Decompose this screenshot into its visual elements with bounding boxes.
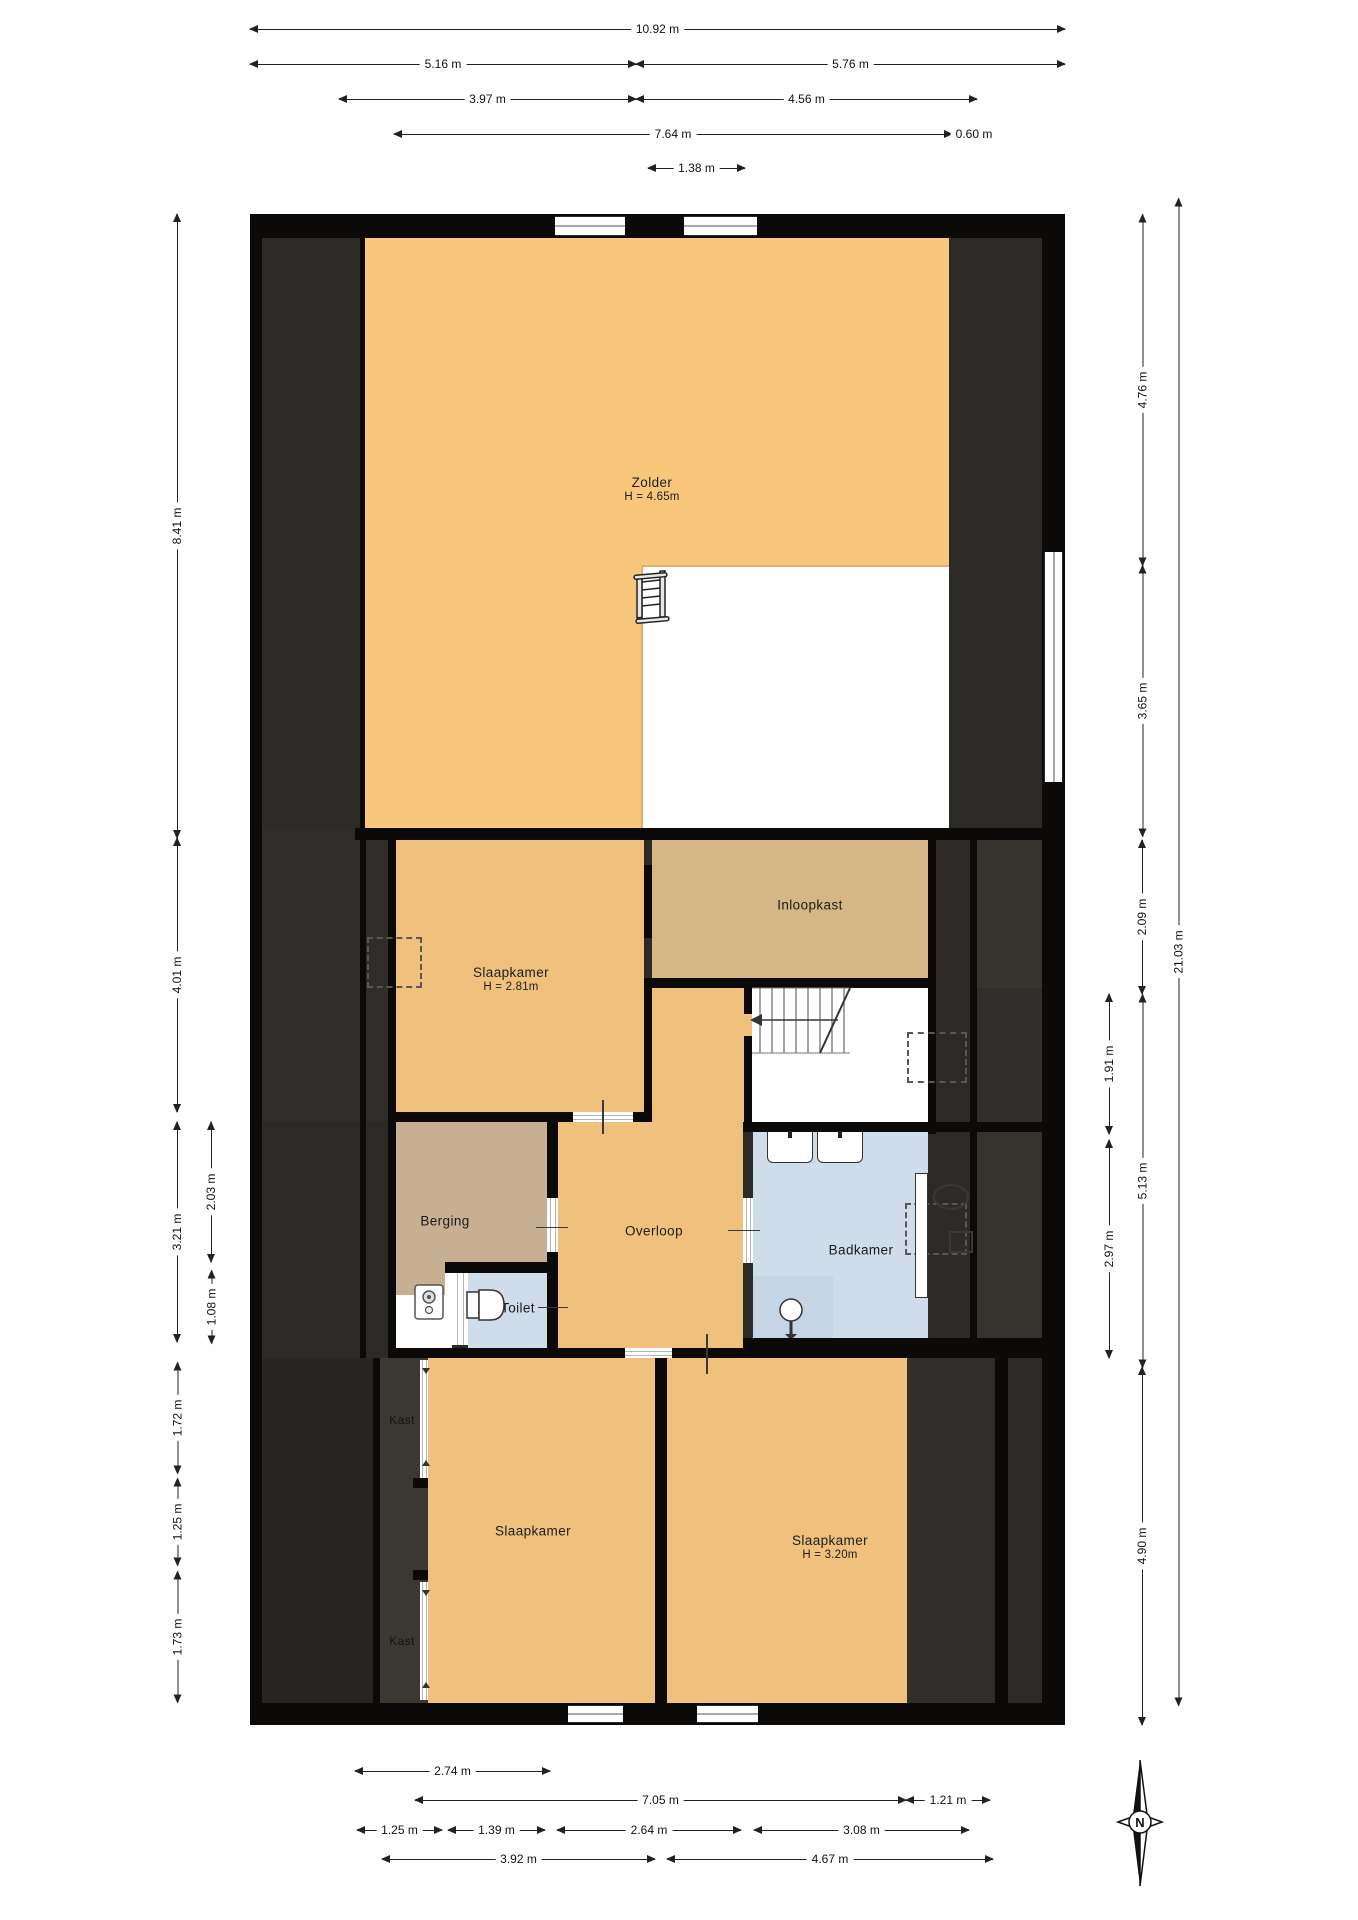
wall — [445, 1262, 557, 1273]
window-glass-line — [1053, 552, 1055, 782]
arrowhead-left-icon — [173, 1557, 181, 1566]
arrowhead-right-icon — [207, 1269, 215, 1278]
arrowhead-left-icon — [447, 1826, 456, 1834]
dark-area — [262, 1358, 373, 1703]
door-line — [550, 1198, 551, 1252]
window-glass-line — [697, 1713, 758, 1715]
arrowhead-right-icon — [542, 1767, 551, 1775]
room-label-badkamer: Badkamer — [829, 1243, 894, 1258]
arrowhead-right-icon — [173, 1361, 181, 1370]
dimension-label: 1.25 m — [376, 1823, 423, 1838]
dimension-label: 2.64 m — [626, 1823, 673, 1838]
wall — [644, 865, 652, 938]
dimension-top-a: 3.97 m — [339, 94, 636, 106]
arrowhead-left-icon — [666, 1855, 675, 1863]
arrowhead-left-icon — [1174, 1697, 1182, 1706]
annotation-line — [602, 1100, 604, 1134]
radiator — [915, 1173, 928, 1298]
door-line — [457, 1273, 458, 1345]
arrowhead-left-icon — [249, 60, 258, 68]
stairs-icon — [744, 984, 856, 1058]
arrowhead-right-icon — [1174, 197, 1182, 206]
floorplan-canvas: ZolderH = 4.65mSlaapkamerH = 2.81mInloop… — [0, 0, 1358, 1920]
wall — [547, 1122, 558, 1198]
room-label-text: Slaapkamer — [495, 1524, 571, 1539]
dimension-right-5: 5.13 m — [1137, 994, 1149, 1367]
arrowhead-left-icon — [207, 1335, 215, 1344]
dimension-top-left: 5.16 m — [250, 59, 636, 71]
arrowhead-right-icon — [1105, 993, 1113, 1002]
dimension-bot-2b: 1.21 m — [906, 1795, 990, 1807]
dimension-left-in-1: 2.03 m — [206, 1122, 218, 1262]
room-label-sub: H = 3.20m — [792, 1549, 868, 1561]
dimension-left-5: 1.25 m — [172, 1478, 184, 1565]
dimension-label: 0.60 m — [951, 127, 998, 142]
arrowhead-right-icon — [173, 837, 181, 846]
wall — [373, 1358, 380, 1703]
room-label-text: Badkamer — [829, 1243, 894, 1258]
room-berging — [396, 1122, 547, 1262]
annotation-line — [538, 1307, 568, 1308]
arrowhead-right-icon — [173, 213, 181, 222]
door-line — [463, 1273, 464, 1345]
arrowhead-left-icon — [249, 25, 258, 33]
dimension-label: 1.72 m — [170, 1394, 185, 1441]
arrowhead-right-icon — [173, 1570, 181, 1579]
arrowhead-right-icon — [985, 1855, 994, 1863]
arrowhead-right-icon — [207, 1121, 215, 1130]
annotation-line — [536, 1227, 568, 1228]
dimension-label: 4.67 m — [807, 1852, 854, 1867]
dimension-top-total: 10.92 m — [250, 24, 1065, 36]
room-label-sub: H = 4.65m — [624, 491, 679, 503]
kast-door-arrow-icon — [422, 1368, 430, 1374]
window-glass-line — [568, 1713, 623, 1715]
dimension-left-2: 4.01 m — [172, 838, 184, 1112]
dimension-label: 1.91 m — [1102, 1041, 1117, 1088]
dimension-bot-2a: 7.05 m — [415, 1795, 906, 1807]
dimension-left-6: 1.73 m — [172, 1571, 184, 1702]
dimension-bot-1: 2.74 m — [355, 1766, 550, 1778]
dimension-label: 3.08 m — [838, 1823, 885, 1838]
arrowhead-right-icon — [173, 1477, 181, 1486]
dark-area — [977, 1132, 1042, 1358]
window-glass-line — [555, 225, 625, 227]
arrowhead-right-icon — [969, 95, 978, 103]
room-slaapkamer-3 — [667, 1358, 907, 1703]
room-label-slaapkamer-2: Slaapkamer — [495, 1524, 571, 1539]
dimension-bot-3b: 1.39 m — [448, 1825, 545, 1837]
annotation-line — [706, 1334, 708, 1374]
arrowhead-left-icon — [753, 1826, 762, 1834]
arrowhead-right-icon — [737, 164, 746, 172]
room-niche — [445, 1273, 452, 1348]
dimension-right-total: 21.03 m — [1173, 198, 1185, 1705]
arrowhead-right-icon — [1138, 1366, 1146, 1375]
dimension-bot-3c: 2.64 m — [557, 1825, 741, 1837]
label-kast-2: Kast — [389, 1634, 415, 1648]
kast-door-arrow-icon — [422, 1590, 430, 1596]
kast-door-arrow-icon — [422, 1460, 430, 1466]
wall — [655, 1358, 667, 1703]
boiler-icon — [414, 1284, 446, 1322]
room-label-inloopkast: Inloopkast — [777, 898, 843, 913]
ladder-icon — [634, 572, 670, 624]
arrowhead-left-icon — [1138, 1717, 1146, 1726]
door-line — [625, 1355, 672, 1356]
arrowhead-left-icon — [173, 1104, 181, 1113]
dimension-label: 8.41 m — [170, 503, 185, 550]
dimension-right-3: 2.09 m — [1137, 840, 1149, 994]
dimension-right-7: 4.90 m — [1137, 1367, 1149, 1725]
arrowhead-right-icon — [982, 1796, 991, 1804]
dimension-label: 21.03 m — [1171, 925, 1186, 978]
dimension-label: 2.03 m — [204, 1169, 219, 1216]
wall — [928, 840, 936, 988]
dimension-top-right: 5.76 m — [636, 59, 1065, 71]
arrowhead-right-icon — [647, 1855, 656, 1863]
dimension-right-2: 3.65 m — [1137, 565, 1149, 836]
room-label-berging: Berging — [420, 1214, 469, 1229]
arrowhead-right-icon — [961, 1826, 970, 1834]
arrowhead-left-icon — [173, 1694, 181, 1703]
room-label-sub: H = 2.81m — [473, 981, 549, 993]
room-label-text: Overloop — [625, 1224, 683, 1239]
sink-tap-icon — [788, 1131, 792, 1138]
dimension-left-4: 1.72 m — [172, 1362, 184, 1473]
wall — [995, 1358, 1008, 1703]
arrowhead-right-icon — [173, 1121, 181, 1130]
dimension-bot-4b: 4.67 m — [667, 1854, 993, 1866]
room-label-text: Slaapkamer — [792, 1533, 868, 1548]
dimension-left-in-2: 1.08 m — [206, 1270, 218, 1343]
arrowhead-left-icon — [1138, 828, 1146, 837]
toilet-icon — [466, 1288, 508, 1322]
arrowhead-right-icon — [1138, 993, 1146, 1002]
arrowhead-right-icon — [1138, 213, 1146, 222]
dimension-label: 5.16 m — [420, 57, 467, 72]
wall — [250, 214, 262, 1725]
window — [684, 216, 757, 236]
wall — [1042, 214, 1065, 1725]
arrowhead-left-icon — [905, 1796, 914, 1804]
wall — [644, 978, 652, 1112]
dimension-label: 7.64 m — [650, 127, 697, 142]
dimension-label: 3.97 m — [464, 92, 511, 107]
arrowhead-right-icon — [733, 1826, 742, 1834]
dimension-label: 3.92 m — [495, 1852, 542, 1867]
dimension-left-3: 3.21 m — [172, 1122, 184, 1342]
arrowhead-left-icon — [381, 1855, 390, 1863]
room-label-text: Slaapkamer — [473, 965, 549, 980]
dimension-label: 2.09 m — [1135, 894, 1150, 941]
dimension-right-1: 4.76 m — [1137, 214, 1149, 565]
dimension-left-1: 8.41 m — [172, 214, 184, 838]
door — [547, 1198, 558, 1252]
wall — [355, 828, 1042, 840]
dimension-label: 5.13 m — [1135, 1157, 1150, 1204]
room-label-overloop: Overloop — [625, 1224, 683, 1239]
shower-icon — [776, 1296, 806, 1338]
arrowhead-right-icon — [1138, 564, 1146, 573]
arrowhead-left-icon — [635, 95, 644, 103]
wall — [388, 1112, 573, 1122]
room-label-slaapkamer-1: SlaapkamerH = 2.81m — [473, 965, 549, 993]
window — [697, 1705, 758, 1723]
dimension-top-b: 4.56 m — [636, 94, 977, 106]
dimension-label: 10.92 m — [631, 22, 684, 37]
arrowhead-right-icon — [1057, 25, 1066, 33]
arrowhead-right-icon — [537, 1826, 546, 1834]
door — [625, 1348, 672, 1358]
room-label-slaapkamer-3: SlaapkamerH = 3.20m — [792, 1533, 868, 1561]
window — [568, 1705, 623, 1723]
dimension-right-6: 2.97 m — [1104, 1140, 1116, 1358]
arrowhead-right-icon — [434, 1826, 443, 1834]
wall — [388, 840, 396, 1348]
hidden-fixture-outline — [928, 1180, 978, 1260]
arrowhead-left-icon — [354, 1767, 363, 1775]
room-overloop — [652, 988, 744, 1122]
dark-area — [977, 840, 1042, 988]
dashed-outline-box — [907, 1032, 967, 1083]
arrowhead-left-icon — [356, 1826, 365, 1834]
room-label-zolder: ZolderH = 4.65m — [624, 475, 679, 503]
wall — [388, 1348, 625, 1358]
dimension-label: 3.65 m — [1135, 677, 1150, 724]
wall — [413, 1570, 428, 1580]
compass-n-label: N — [1135, 1815, 1144, 1830]
dimension-label: 1.08 m — [204, 1283, 219, 1330]
dimension-top-e: 1.38 m — [648, 163, 745, 175]
dimension-top-c: 7.64 m — [394, 129, 952, 141]
arrowhead-left-icon — [1105, 1350, 1113, 1359]
door-line — [555, 1198, 556, 1252]
wall — [633, 1112, 652, 1122]
arrowhead-left-icon — [173, 1334, 181, 1343]
kast-door-arrow-icon — [422, 1682, 430, 1688]
window-glass-line — [684, 225, 757, 227]
dimension-label: 3.21 m — [170, 1209, 185, 1256]
arrowhead-right-icon — [1138, 839, 1146, 848]
dimension-bot-3a: 1.25 m — [357, 1825, 442, 1837]
dimension-label: 4.90 m — [1135, 1523, 1150, 1570]
arrowhead-left-icon — [414, 1796, 423, 1804]
wall — [743, 1338, 1042, 1358]
arrowhead-left-icon — [1105, 1126, 1113, 1135]
room-label-text: Inloopkast — [777, 898, 843, 913]
sink-tap-icon — [838, 1131, 842, 1138]
arrowhead-right-icon — [1057, 60, 1066, 68]
arrowhead-left-icon — [393, 130, 402, 138]
dimension-label: 2.74 m — [429, 1764, 476, 1779]
wall — [970, 840, 977, 1358]
arrowhead-left-icon — [647, 164, 656, 172]
dimension-label: 5.76 m — [827, 57, 874, 72]
dark-area — [977, 988, 1042, 1132]
window — [1044, 552, 1063, 782]
room-vide — [641, 565, 949, 828]
dimension-label: 2.97 m — [1102, 1226, 1117, 1273]
wall — [250, 1703, 1065, 1725]
dimension-label: 1.73 m — [170, 1613, 185, 1660]
dimension-label: 1.39 m — [473, 1823, 520, 1838]
compass-north-icon: N — [1108, 1758, 1172, 1888]
dimension-label: 4.76 m — [1135, 366, 1150, 413]
arrowhead-right-icon — [1105, 1139, 1113, 1148]
label-kast-1: Kast — [389, 1413, 415, 1427]
room-label-text: Zolder — [632, 475, 673, 490]
dashed-outline-box — [367, 937, 422, 988]
dimension-label: 7.05 m — [637, 1793, 684, 1808]
arrowhead-left-icon — [635, 60, 644, 68]
dimension-label: 4.56 m — [783, 92, 830, 107]
dimension-label: 4.01 m — [170, 952, 185, 999]
arrowhead-left-icon — [338, 95, 347, 103]
dimension-label: 1.25 m — [170, 1498, 185, 1545]
dimension-label: 1.21 m — [925, 1793, 972, 1808]
dimension-bot-3d: 3.08 m — [754, 1825, 969, 1837]
arrowhead-left-icon — [173, 1465, 181, 1474]
dark-area — [907, 1358, 995, 1703]
dimension-right-4: 1.91 m — [1104, 994, 1116, 1134]
dimension-label: 1.38 m — [673, 161, 720, 176]
arrowhead-left-icon — [207, 1254, 215, 1263]
wall — [413, 1478, 428, 1488]
window — [555, 216, 625, 236]
door-line — [625, 1351, 672, 1352]
arrowhead-left-icon — [556, 1826, 565, 1834]
room-label-text: Berging — [420, 1214, 469, 1229]
wall — [250, 214, 1065, 238]
dimension-top-d: 0.60 m — [952, 129, 996, 141]
annotation-line — [728, 1230, 760, 1231]
dimension-bot-4a: 3.92 m — [382, 1854, 655, 1866]
